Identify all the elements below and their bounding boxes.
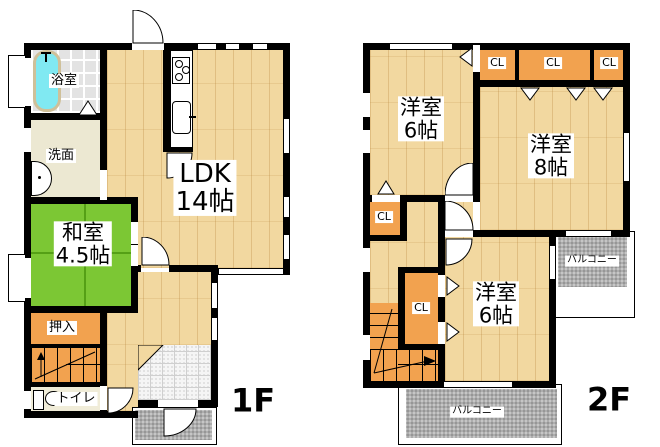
washroom-label: 洗面 xyxy=(46,149,76,163)
wall xyxy=(24,306,138,313)
window xyxy=(389,43,453,50)
window xyxy=(24,128,31,152)
stove-burner xyxy=(182,66,190,74)
bedroom-e-label-line2: 8帖 xyxy=(530,156,572,179)
ldk-label-line2: 14帖 xyxy=(175,188,234,216)
window xyxy=(363,248,370,272)
closet-label: CL xyxy=(412,302,430,314)
closet-door-mark xyxy=(593,87,613,101)
closet-label: CL xyxy=(600,57,618,69)
washitsu-label-line2: 4.5帖 xyxy=(56,244,110,267)
door-arc xyxy=(445,163,474,196)
window xyxy=(24,258,31,298)
ldk-label-line1: LDK xyxy=(175,160,234,188)
bedroom-nw-label-line1: 洋室 xyxy=(400,96,442,119)
closet-door-mark xyxy=(459,47,473,67)
floor1-title: 1F xyxy=(231,384,275,419)
faucet-icon xyxy=(41,52,51,54)
ldk-label: LDK 14帖 xyxy=(173,160,236,216)
toilet-tank xyxy=(33,390,44,410)
door-opening xyxy=(445,230,473,237)
door-opening xyxy=(372,195,400,202)
window xyxy=(363,93,370,117)
balcony-label: バルコニー xyxy=(565,256,619,267)
window xyxy=(211,282,218,309)
stairs-direction-arrow xyxy=(31,348,100,382)
entrance-corner-step xyxy=(138,345,164,371)
sliding-door xyxy=(100,170,107,200)
balcony-label: バルコニー xyxy=(450,407,504,418)
washitsu-label-line1: 和室 xyxy=(56,221,110,244)
window xyxy=(252,43,268,50)
closet-door-mark xyxy=(446,322,460,342)
bedroom-e-label: 洋室 8帖 xyxy=(528,133,574,178)
oshiire-label: 押入 xyxy=(47,321,77,335)
wall xyxy=(24,382,107,387)
window xyxy=(363,335,370,360)
floor-plan: 浴室 洗面 LDK 14帖 和室 4.5帖 押入 トイレ 1F xyxy=(0,0,660,447)
door-opening xyxy=(438,322,445,344)
folding-door-mark xyxy=(78,100,98,116)
stairs-direction-arrow xyxy=(370,303,438,381)
door-arc xyxy=(132,10,164,44)
sink-handle xyxy=(189,116,196,118)
bath-label: 浴室 xyxy=(49,74,79,88)
closet-label: CL xyxy=(488,57,506,69)
toilet-label: トイレ xyxy=(54,392,97,406)
wall xyxy=(169,265,218,272)
door-arc xyxy=(445,238,473,266)
bedroom-nw-label: 洋室 6帖 xyxy=(398,96,444,141)
entrance-door-arc xyxy=(163,408,199,438)
window xyxy=(565,230,612,237)
closet-door-mark xyxy=(566,87,586,101)
bedroom-nw-label-line2: 6帖 xyxy=(400,119,442,142)
door-opening xyxy=(100,386,107,410)
stove-burner xyxy=(175,73,183,81)
wall xyxy=(398,267,445,273)
window xyxy=(283,234,290,260)
wall xyxy=(515,50,519,80)
window xyxy=(225,43,240,50)
wall xyxy=(363,235,407,241)
window xyxy=(283,196,290,218)
wall xyxy=(131,265,141,272)
closet-door-mark xyxy=(520,87,540,101)
door-opening xyxy=(132,43,164,50)
window xyxy=(363,130,370,153)
window xyxy=(549,245,556,280)
wall xyxy=(163,43,170,145)
washitsu-label: 和室 4.5帖 xyxy=(54,221,112,266)
closet-label: CL xyxy=(375,211,393,223)
bedroom-e-label-line1: 洋室 xyxy=(530,133,572,156)
window xyxy=(623,132,630,182)
closet-label: CL xyxy=(544,57,562,69)
bedroom-s-label: 洋室 6帖 xyxy=(473,281,519,326)
bedroom-s-label-line2: 6帖 xyxy=(475,304,517,327)
wall xyxy=(590,50,594,80)
door-opening xyxy=(158,400,198,407)
closet-door-mark xyxy=(446,276,460,296)
wall xyxy=(473,80,630,87)
floor2-title: 2F xyxy=(587,383,631,418)
door-arc xyxy=(444,201,474,231)
window xyxy=(443,381,513,388)
window xyxy=(211,317,218,341)
door-opening xyxy=(473,45,480,72)
door-arc xyxy=(107,387,134,414)
closet-door-mark xyxy=(377,180,395,196)
door-arc xyxy=(141,237,170,266)
bedroom-s-label-line1: 洋室 xyxy=(475,281,517,304)
window xyxy=(218,268,284,275)
window xyxy=(197,43,217,50)
basin-drain xyxy=(38,176,41,179)
window xyxy=(24,391,31,409)
wall xyxy=(24,197,138,204)
door-opening xyxy=(438,275,445,297)
window xyxy=(24,58,31,106)
sliding-door-line xyxy=(131,244,138,245)
window xyxy=(283,118,290,154)
